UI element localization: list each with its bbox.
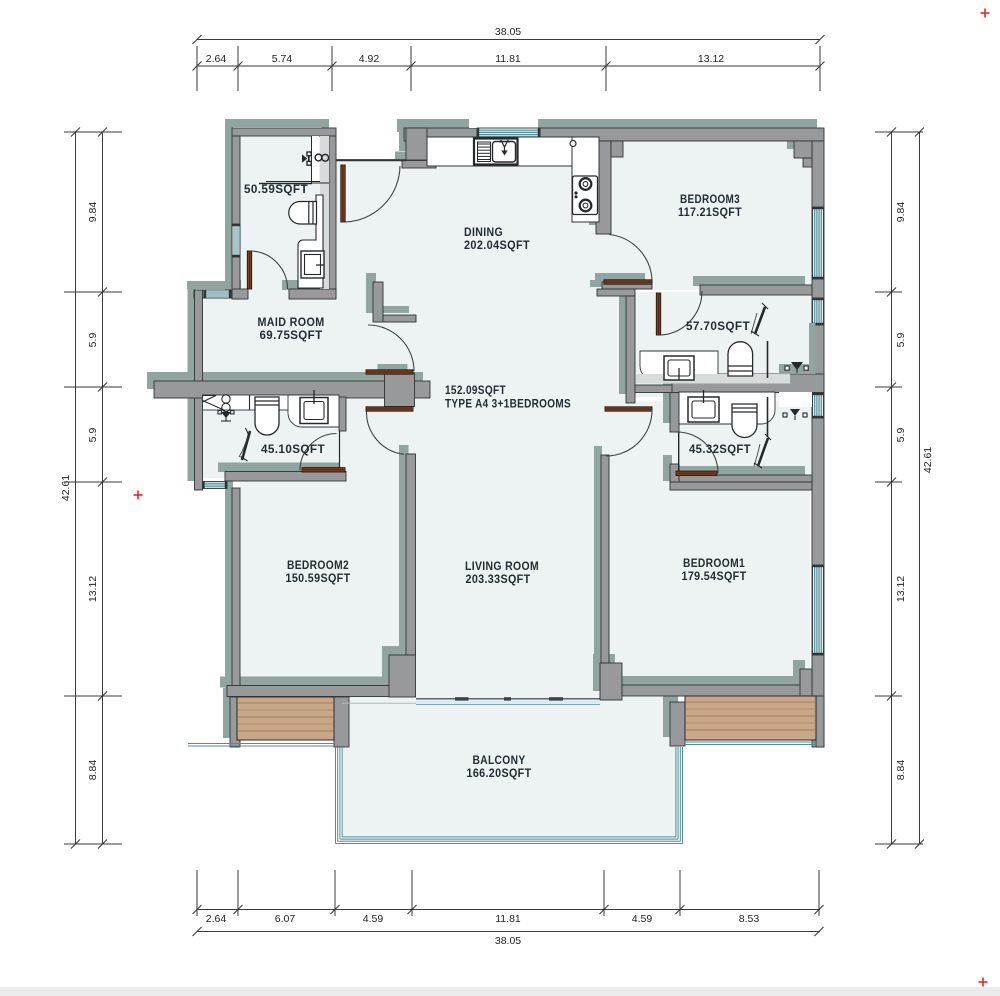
svg-text:13.12: 13.12: [87, 576, 99, 602]
svg-text:166.20SQFT: 166.20SQFT: [467, 766, 532, 780]
svg-text:69.75SQFT: 69.75SQFT: [260, 328, 323, 342]
svg-text:LIVING ROOM: LIVING ROOM: [465, 559, 539, 573]
svg-text:45.32SQFT: 45.32SQFT: [689, 442, 751, 456]
svg-text:150.59SQFT: 150.59SQFT: [286, 571, 351, 585]
svg-text:5.9: 5.9: [895, 333, 907, 348]
svg-text:5.9: 5.9: [87, 333, 99, 348]
svg-text:11.81: 11.81: [495, 53, 521, 65]
svg-text:13.12: 13.12: [895, 576, 907, 602]
svg-text:13.12: 13.12: [698, 53, 724, 65]
svg-text:BALCONY: BALCONY: [473, 753, 526, 767]
svg-text:11.81: 11.81: [495, 913, 521, 925]
svg-text:117.21SQFT: 117.21SQFT: [678, 205, 742, 219]
svg-text:8.53: 8.53: [739, 913, 760, 925]
svg-text:9.84: 9.84: [87, 202, 99, 223]
svg-text:5.74: 5.74: [272, 53, 293, 65]
svg-text:BEDROOM3: BEDROOM3: [680, 192, 740, 206]
svg-text:4.92: 4.92: [359, 53, 380, 65]
svg-text:152.09SQFT: 152.09SQFT: [445, 383, 506, 397]
svg-text:2.64: 2.64: [206, 913, 227, 925]
svg-text:BEDROOM2: BEDROOM2: [287, 558, 349, 572]
svg-text:9.84: 9.84: [895, 202, 907, 223]
svg-text:4.59: 4.59: [632, 913, 653, 925]
svg-text:MAID ROOM: MAID ROOM: [258, 315, 325, 329]
svg-text:45.10SQFT: 45.10SQFT: [261, 442, 325, 456]
svg-text:42.61: 42.61: [922, 447, 934, 473]
svg-text:DINING: DINING: [464, 225, 503, 239]
svg-text:50.59SQFT: 50.59SQFT: [244, 182, 308, 196]
svg-text:179.54SQFT: 179.54SQFT: [682, 569, 747, 583]
svg-text:38.05: 38.05: [495, 935, 521, 947]
svg-text:BEDROOM1: BEDROOM1: [683, 556, 745, 570]
svg-text:5.9: 5.9: [87, 428, 99, 443]
svg-text:TYPE A4 3+1BEDROOMS: TYPE A4 3+1BEDROOMS: [445, 397, 571, 411]
svg-text:203.33SQFT: 203.33SQFT: [466, 572, 531, 586]
svg-text:8.84: 8.84: [87, 760, 99, 781]
svg-text:57.70SQFT: 57.70SQFT: [686, 319, 750, 333]
svg-text:2.64: 2.64: [206, 53, 227, 65]
svg-text:6.07: 6.07: [275, 913, 296, 925]
svg-text:8.84: 8.84: [895, 760, 907, 781]
svg-text:5.9: 5.9: [895, 428, 907, 443]
svg-text:42.61: 42.61: [60, 475, 72, 501]
svg-text:202.04SQFT: 202.04SQFT: [464, 238, 530, 252]
svg-text:4.59: 4.59: [363, 913, 384, 925]
svg-text:38.05: 38.05: [495, 26, 521, 38]
